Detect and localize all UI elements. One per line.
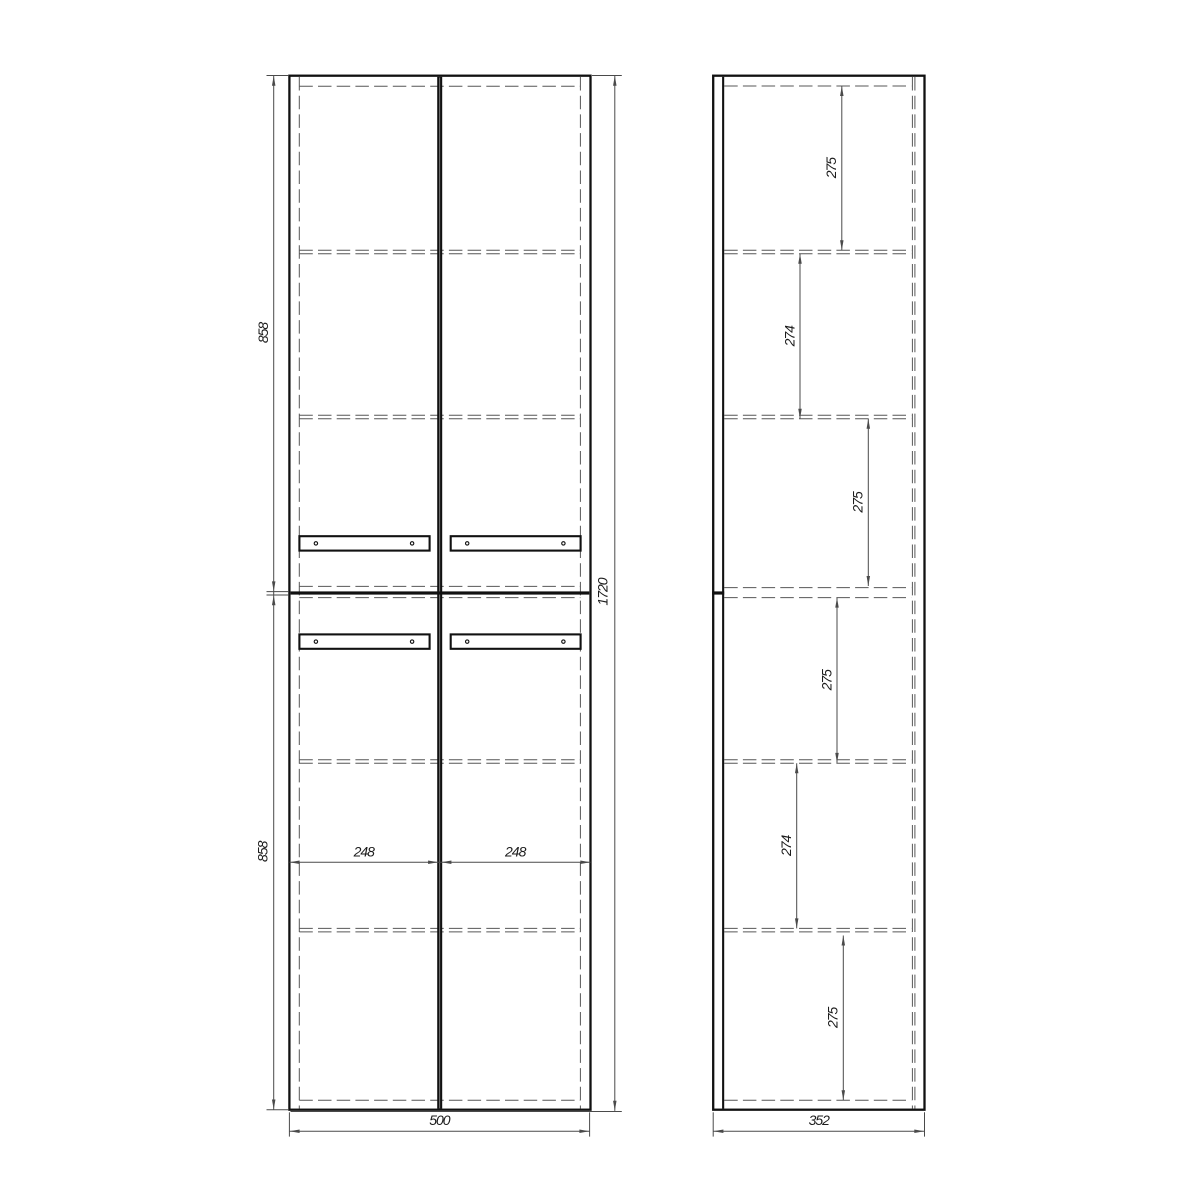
svg-text:274: 274 (778, 834, 794, 857)
svg-text:858: 858 (255, 840, 271, 862)
svg-text:858: 858 (255, 322, 271, 344)
svg-text:352: 352 (809, 1112, 831, 1128)
svg-text:275: 275 (818, 669, 834, 692)
svg-text:248: 248 (353, 843, 376, 859)
svg-text:275: 275 (823, 157, 839, 180)
svg-text:275: 275 (850, 491, 866, 514)
svg-text:275: 275 (825, 1006, 841, 1029)
svg-text:500: 500 (429, 1112, 451, 1128)
svg-text:248: 248 (504, 843, 527, 859)
svg-text:274: 274 (781, 325, 797, 348)
svg-text:1720: 1720 (595, 577, 611, 605)
